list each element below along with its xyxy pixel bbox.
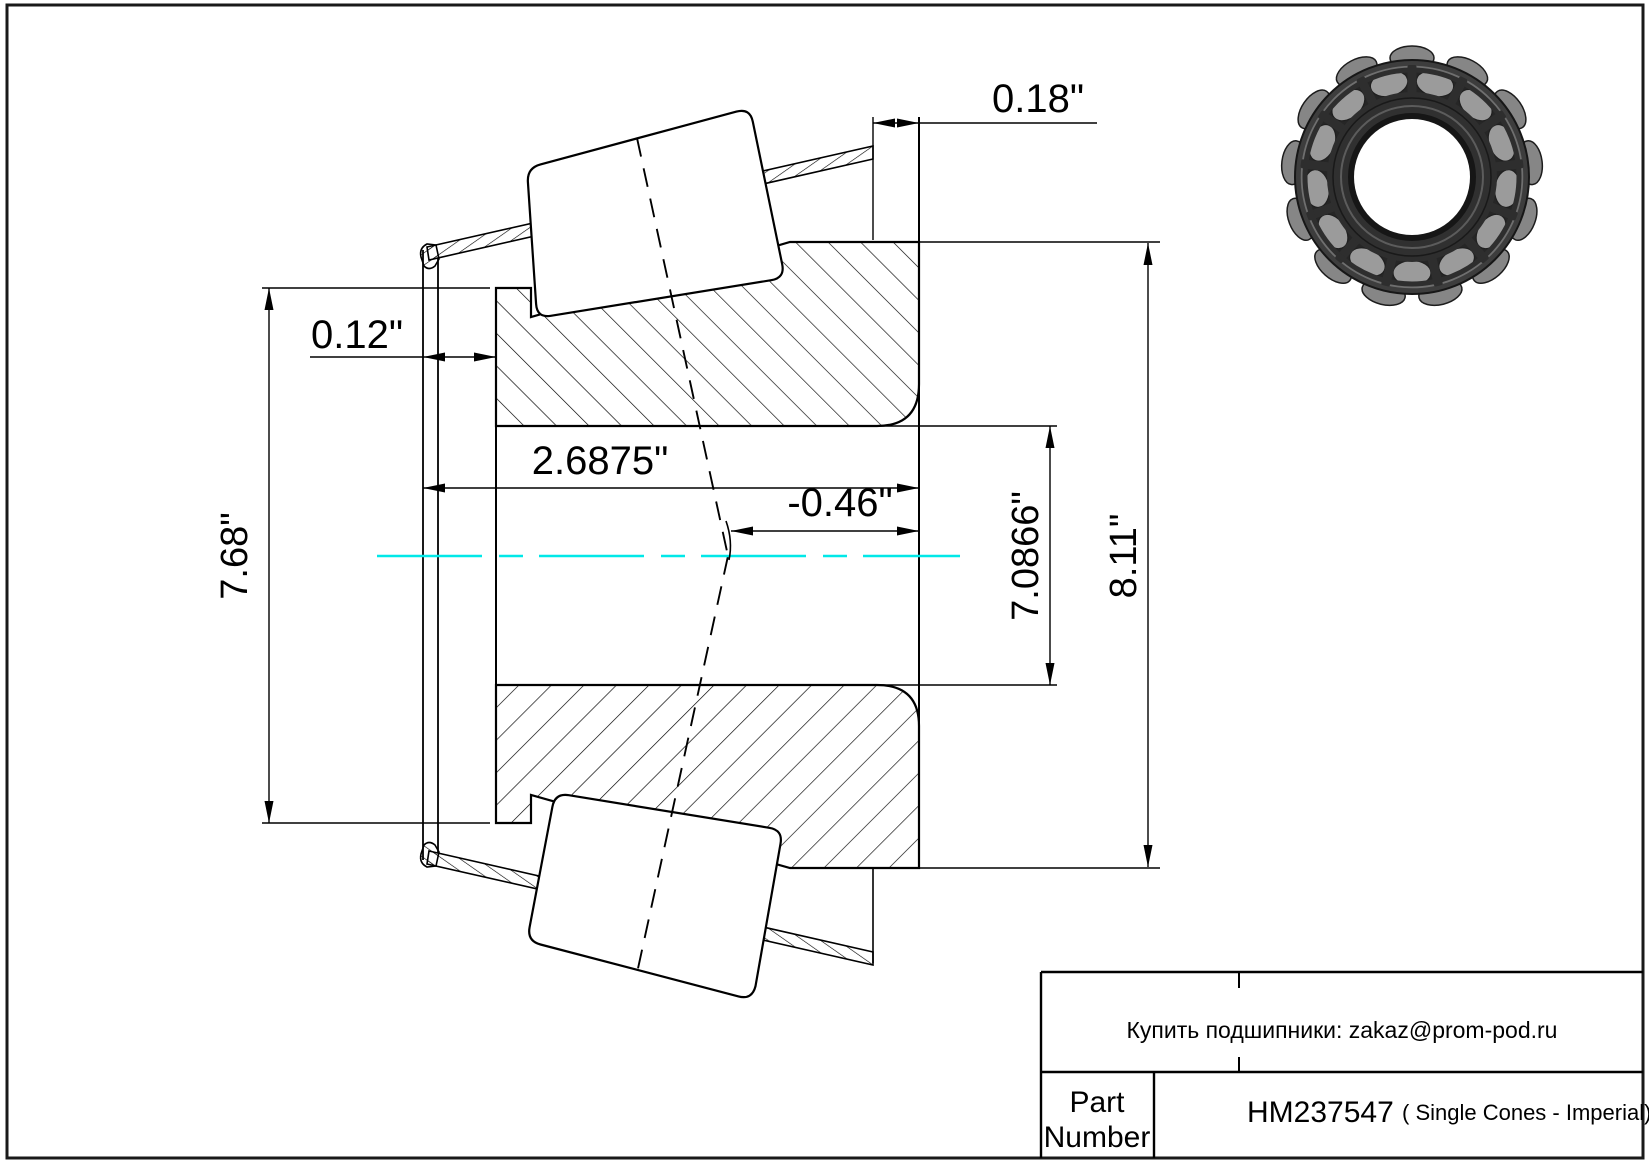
part-number-text: HM237547	[1247, 1096, 1394, 1129]
bearing-drawing-svg: 0.18" 0.12" 2.6875" -0.46"	[0, 0, 1649, 1167]
dim-cage-standout-back: 0.12"	[310, 313, 496, 362]
dim-label-7-0866: 7.0866"	[1005, 491, 1047, 621]
bearing-photo	[1279, 46, 1544, 309]
dim-cone-bore: 7.0866"	[1005, 426, 1055, 685]
dim-label-7-68: 7.68"	[214, 512, 256, 599]
cage-lower-hook	[421, 843, 439, 868]
dim-label-minus-0-46: -0.46"	[787, 481, 892, 525]
dim-label-0-12: 0.12"	[311, 313, 403, 357]
drawing-sheet: 0.18" 0.12" 2.6875" -0.46"	[0, 0, 1649, 1167]
dim-label-0-18: 0.18"	[992, 77, 1084, 121]
title-block: Купить подшипники: zakaz@prom-pod.ru Par…	[1041, 971, 1649, 1158]
part-label-line2: Number	[1044, 1121, 1151, 1154]
part-label-line1: Part	[1069, 1086, 1125, 1119]
dim-front-od: 8.11"	[1103, 243, 1153, 867]
cage-upper-hook	[421, 244, 439, 269]
bearing-bore	[1354, 119, 1470, 235]
contact-text: Купить подшипники: zakaz@prom-pod.ru	[1127, 1017, 1558, 1043]
lower-roller	[529, 795, 781, 997]
upper-roller	[528, 111, 783, 316]
dim-label-8-11: 8.11"	[1103, 514, 1145, 599]
dim-effective-load-center: -0.46"	[726, 481, 919, 560]
dim-cage-standout-front: 0.18"	[873, 77, 1097, 240]
dim-label-2-6875: 2.6875"	[532, 439, 669, 483]
part-series-text: ( Single Cones - Imperial)	[1402, 1100, 1649, 1125]
